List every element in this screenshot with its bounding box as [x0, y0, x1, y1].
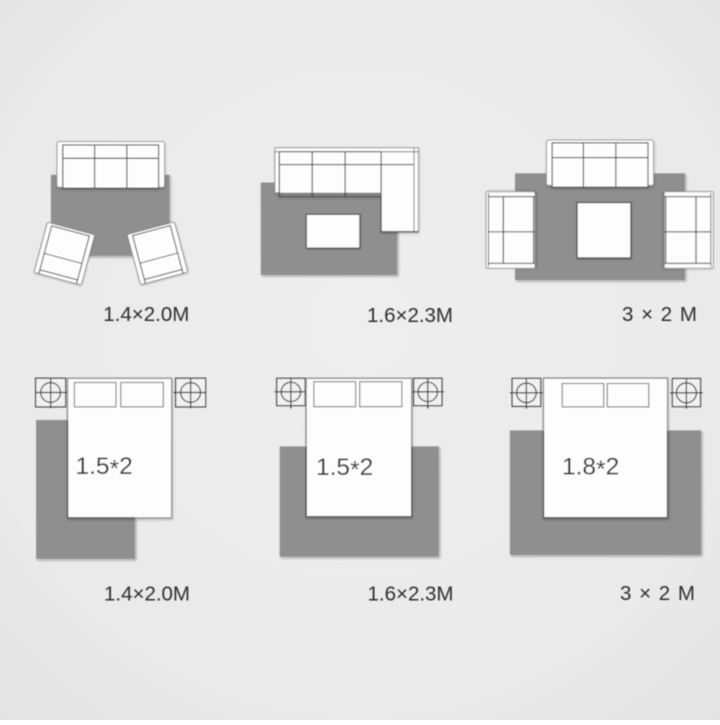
svg-text:3 × 2 M: 3 × 2 M: [622, 303, 698, 326]
svg-text:1.5*2: 1.5*2: [76, 453, 133, 483]
svg-text:1.8*2: 1.8*2: [562, 454, 619, 484]
svg-text:1.5*2: 1.5*2: [316, 454, 373, 484]
svg-text:1.6×2.3M: 1.6×2.3M: [367, 304, 453, 327]
svg-text:1.4×2.0M: 1.4×2.0M: [104, 583, 190, 606]
svg-text:1.4×2.0M: 1.4×2.0M: [103, 303, 189, 326]
svg-text:3 × 2 M: 3 × 2 M: [620, 582, 696, 605]
svg-text:1.6×2.3M: 1.6×2.3M: [367, 583, 453, 606]
